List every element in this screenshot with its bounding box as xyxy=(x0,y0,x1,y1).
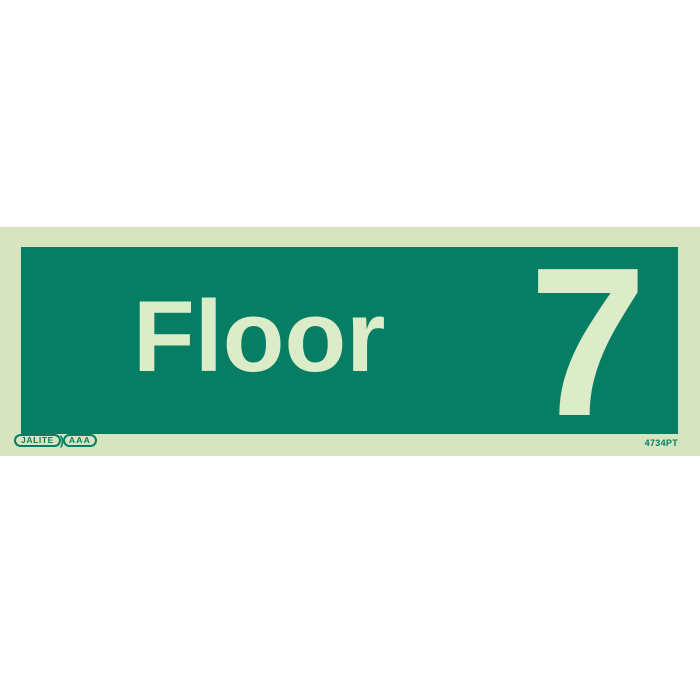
brand-separator: ) xyxy=(60,434,64,447)
product-code: 4734PT xyxy=(645,439,678,448)
sign-panel: Floor 7 JALITE ) AAA 4734PT xyxy=(0,227,700,456)
sign-face: Floor 7 xyxy=(21,247,678,434)
product-image: Floor 7 JALITE ) AAA 4734PT xyxy=(0,0,700,700)
floor-number: 7 xyxy=(529,236,647,448)
floor-label: Floor xyxy=(133,287,385,388)
jalite-logo: JALITE ) AAA xyxy=(14,434,97,447)
brand-grade-badge: AAA xyxy=(63,434,97,447)
brand-name-badge: JALITE xyxy=(14,434,61,447)
